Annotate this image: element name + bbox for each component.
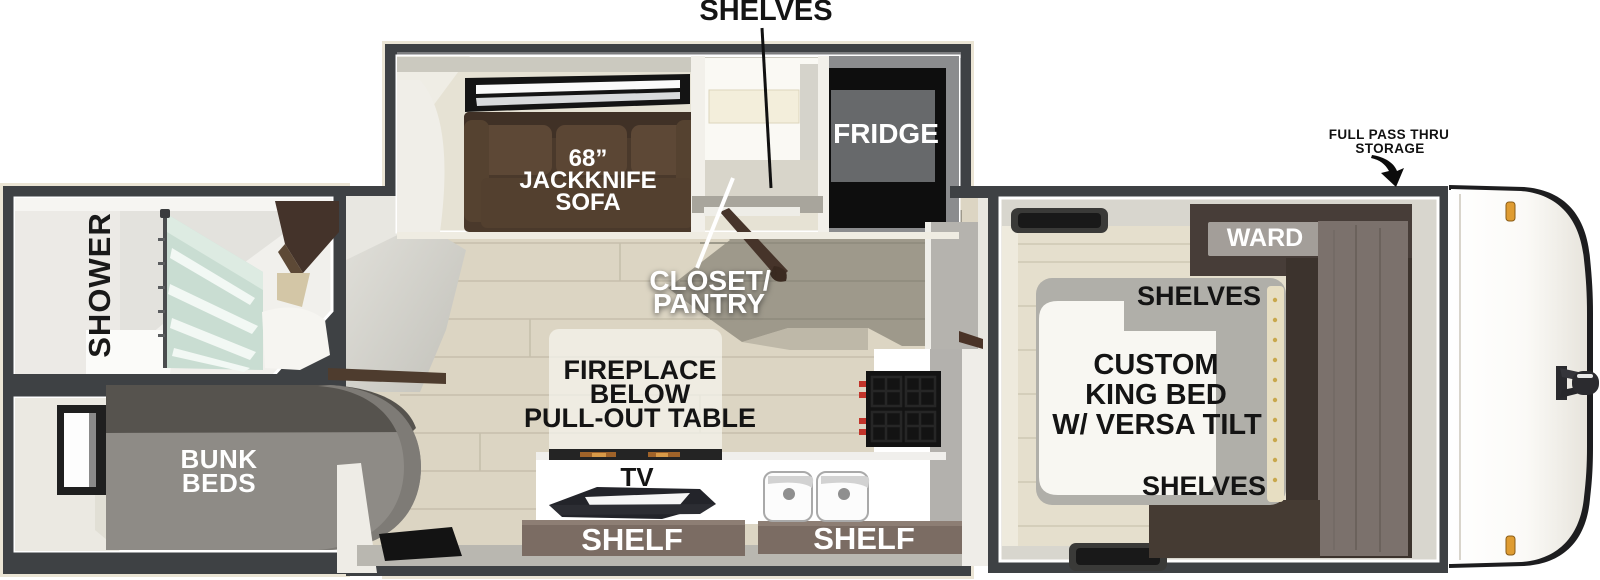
- svg-text:WARD: WARD: [1227, 224, 1303, 252]
- svg-text:FRIDGE: FRIDGE: [833, 118, 939, 149]
- svg-text:SHOWER: SHOWER: [82, 212, 117, 358]
- svg-text:SOFA: SOFA: [555, 189, 620, 216]
- svg-text:BEDS: BEDS: [182, 468, 256, 498]
- svg-text:CUSTOM: CUSTOM: [1093, 349, 1218, 381]
- svg-text:SHELVES: SHELVES: [1142, 471, 1266, 501]
- svg-text:FULL PASS THRU: FULL PASS THRU: [1329, 127, 1450, 142]
- svg-text:PANTRY: PANTRY: [653, 288, 765, 319]
- svg-text:PULL-OUT TABLE: PULL-OUT TABLE: [524, 403, 756, 433]
- svg-text:SHELVES: SHELVES: [699, 0, 832, 27]
- svg-text:SHELF: SHELF: [813, 521, 915, 556]
- svg-text:TV: TV: [620, 462, 654, 492]
- svg-text:KING BED: KING BED: [1085, 379, 1227, 411]
- svg-text:SHELVES: SHELVES: [1137, 281, 1261, 311]
- svg-text:STORAGE: STORAGE: [1355, 141, 1424, 156]
- svg-text:SHELF: SHELF: [581, 522, 683, 557]
- svg-text:W/ VERSA TILT: W/ VERSA TILT: [1052, 409, 1262, 441]
